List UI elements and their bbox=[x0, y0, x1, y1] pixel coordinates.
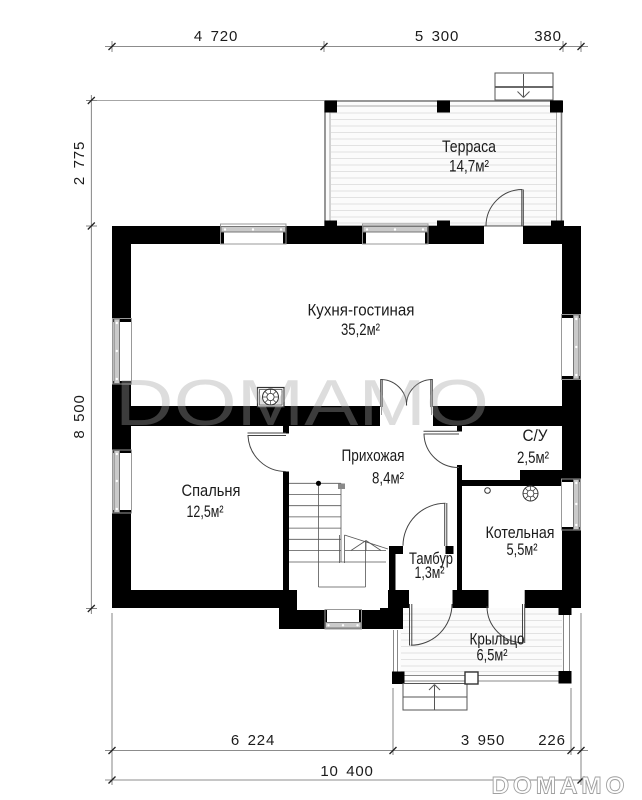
svg-text:2,5м²: 2,5м² bbox=[517, 448, 549, 467]
svg-text:Кухня-гостиная: Кухня-гостиная bbox=[308, 301, 415, 320]
svg-text:6,5м²: 6,5м² bbox=[477, 646, 508, 665]
svg-text:Прихожая: Прихожая bbox=[342, 446, 405, 465]
svg-text:226: 226 bbox=[538, 732, 565, 749]
svg-text:С/У: С/У bbox=[523, 426, 548, 445]
svg-text:2 775: 2 775 bbox=[71, 141, 88, 185]
svg-text:14,7м²: 14,7м² bbox=[449, 157, 489, 176]
svg-text:12,5м²: 12,5м² bbox=[187, 502, 224, 521]
svg-text:3 950: 3 950 bbox=[461, 732, 505, 749]
svg-text:5 300: 5 300 bbox=[415, 28, 459, 45]
svg-text:Спальня: Спальня bbox=[182, 481, 241, 500]
svg-text:8 500: 8 500 bbox=[71, 394, 88, 438]
svg-text:5,5м²: 5,5м² bbox=[507, 540, 538, 559]
svg-text:8,4м²: 8,4м² bbox=[372, 469, 404, 488]
svg-text:10 400: 10 400 bbox=[320, 763, 373, 780]
svg-text:DOMAMO: DOMAMO bbox=[115, 366, 489, 439]
svg-text:6 224: 6 224 bbox=[231, 732, 275, 749]
svg-text:380: 380 bbox=[534, 28, 561, 45]
svg-text:Терраса: Терраса bbox=[442, 137, 496, 156]
svg-text:4 720: 4 720 bbox=[194, 28, 238, 45]
svg-text:35,2м²: 35,2м² bbox=[341, 320, 380, 339]
svg-text:1,3м²: 1,3м² bbox=[415, 563, 445, 582]
